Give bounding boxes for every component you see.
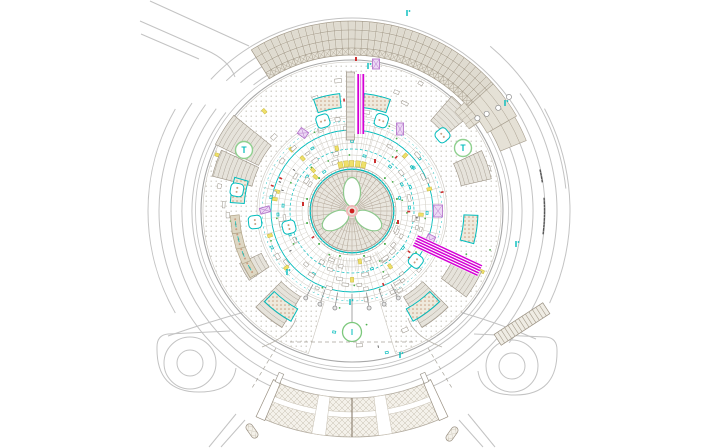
site-plan-drawing [0, 0, 704, 448]
tree-symbol [236, 142, 253, 159]
dome-center-point [350, 209, 355, 214]
cad-viewer [0, 0, 704, 448]
central-dome [306, 165, 398, 257]
dome-petal [344, 178, 361, 207]
kiosk-square [229, 182, 244, 197]
service-box [434, 205, 443, 217]
kiosk-square [281, 219, 297, 235]
service-box [373, 59, 380, 69]
red-tag [302, 202, 304, 206]
red-tag [355, 57, 357, 61]
red-tag [374, 159, 376, 163]
service-box [397, 123, 404, 135]
north-corridor [347, 72, 364, 140]
red-tag [397, 220, 399, 224]
tree-symbol [455, 140, 472, 157]
kiosk-square [248, 215, 262, 229]
tan-planter [230, 215, 241, 234]
